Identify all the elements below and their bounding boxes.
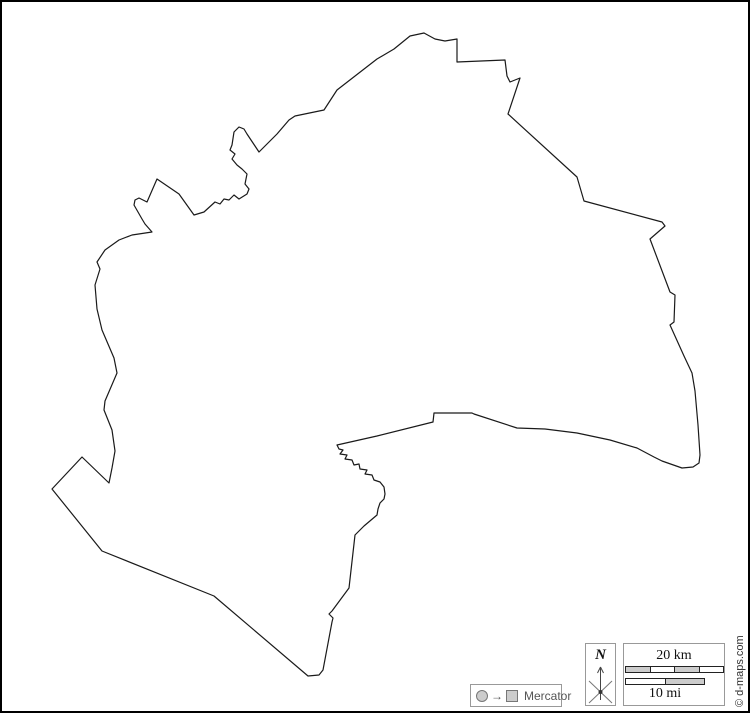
scale-bar-km — [625, 666, 724, 673]
scale-legend: 20 km 10 mi — [623, 643, 725, 706]
scale-segment — [626, 679, 665, 684]
projection-label: Mercator — [524, 689, 571, 703]
north-indicator: N — [585, 643, 616, 706]
scale-segment — [650, 667, 675, 672]
scale-segment — [665, 679, 705, 684]
scale-km-label: 20 km — [624, 649, 724, 663]
projection-legend: → Mercator — [470, 684, 562, 707]
map-page: { "page": { "background": "#ffffff", "bo… — [0, 0, 750, 713]
map-canvas — [2, 2, 748, 711]
arrow-right-icon: → — [491, 690, 503, 702]
scale-segment — [674, 667, 699, 672]
copyright-text: © d-maps.com — [734, 641, 746, 707]
region-outline — [52, 33, 700, 676]
scale-bar-mi — [625, 678, 705, 685]
scale-segment — [699, 667, 724, 672]
scale-mi-label: 10 mi — [625, 687, 705, 701]
north-label: N — [586, 648, 615, 663]
square-icon — [506, 690, 518, 702]
scale-segment — [626, 667, 650, 672]
circle-icon — [476, 690, 488, 702]
compass-north-arrow-icon — [586, 664, 615, 704]
